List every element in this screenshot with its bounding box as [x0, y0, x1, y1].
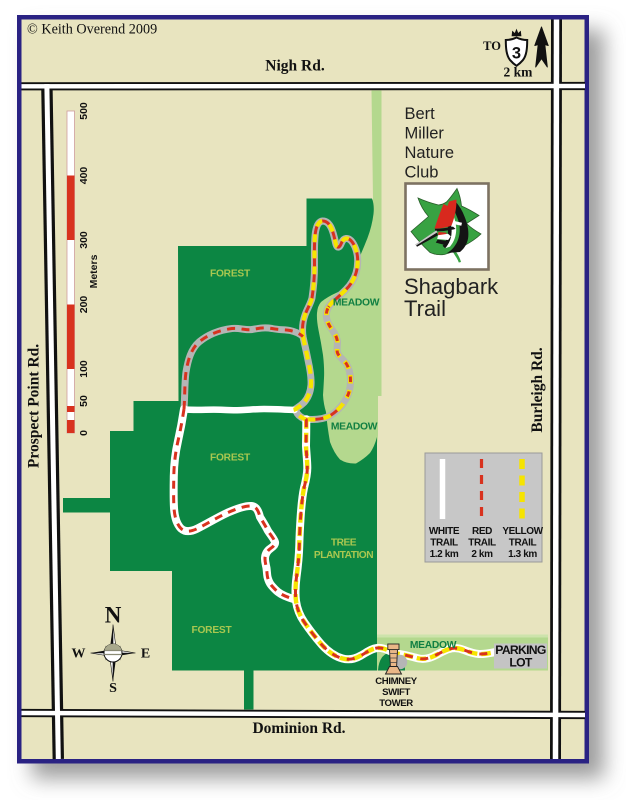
svg-text:Club: Club: [405, 164, 439, 182]
svg-text:Nature: Nature: [405, 144, 455, 162]
svg-text:50: 50: [78, 395, 90, 407]
svg-text:TRAIL: TRAIL: [509, 538, 537, 549]
svg-text:W: W: [72, 647, 86, 662]
svg-text:MEADOW: MEADOW: [331, 422, 378, 433]
svg-text:PLANTATION: PLANTATION: [314, 550, 373, 561]
svg-text:200: 200: [78, 296, 90, 314]
svg-text:MEADOW: MEADOW: [333, 298, 380, 309]
svg-text:TO: TO: [483, 39, 501, 53]
svg-text:Bert: Bert: [405, 105, 436, 123]
svg-text:MEADOW: MEADOW: [410, 640, 457, 651]
svg-text:Trail: Trail: [404, 296, 446, 321]
svg-text:Miller: Miller: [405, 125, 445, 143]
svg-text:FOREST: FOREST: [191, 625, 232, 636]
svg-text:Nigh Rd.: Nigh Rd.: [265, 58, 325, 75]
svg-text:Burleigh Rd.: Burleigh Rd.: [529, 347, 546, 432]
svg-text:FOREST: FOREST: [210, 453, 251, 464]
svg-text:CHIMNEY: CHIMNEY: [375, 676, 417, 687]
svg-text:Meters: Meters: [88, 254, 100, 288]
svg-text:Prospect Point Rd.: Prospect Point Rd.: [26, 344, 43, 468]
svg-text:WHITE: WHITE: [429, 526, 460, 537]
svg-text:TREE: TREE: [331, 538, 357, 549]
svg-text:0: 0: [78, 430, 90, 436]
svg-text:FOREST: FOREST: [210, 269, 251, 280]
svg-text:TOWER: TOWER: [379, 698, 413, 709]
svg-text:500: 500: [78, 102, 90, 120]
svg-text:TRAIL: TRAIL: [430, 538, 458, 549]
svg-text:2 km: 2 km: [504, 65, 534, 80]
svg-text:© Keith Overend 2009: © Keith Overend 2009: [27, 22, 157, 38]
svg-text:YELLOW: YELLOW: [502, 526, 543, 537]
svg-text:Dominion Rd.: Dominion Rd.: [252, 720, 345, 737]
svg-text:RED: RED: [472, 526, 492, 537]
svg-text:1.2 km: 1.2 km: [430, 549, 459, 560]
svg-text:S: S: [109, 681, 117, 696]
svg-text:2 km: 2 km: [471, 549, 493, 560]
svg-text:SWIFT: SWIFT: [382, 687, 410, 698]
svg-text:3: 3: [512, 45, 521, 63]
svg-text:TRAIL: TRAIL: [468, 538, 496, 549]
svg-text:100: 100: [78, 360, 90, 378]
svg-text:1.3 km: 1.3 km: [508, 549, 537, 560]
svg-text:E: E: [141, 647, 150, 662]
svg-text:N: N: [105, 603, 122, 628]
svg-text:300: 300: [78, 231, 90, 249]
svg-text:400: 400: [78, 167, 90, 185]
svg-text:LOT: LOT: [509, 656, 533, 670]
